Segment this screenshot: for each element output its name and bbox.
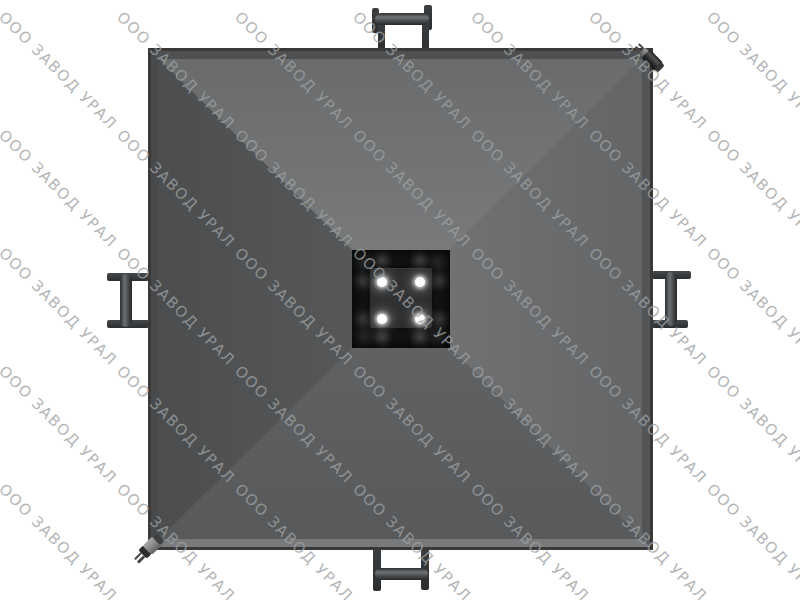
watermark-text: ООО ЗАВОД УРАЛ xyxy=(703,480,800,600)
handle-top-right-leg xyxy=(422,22,429,50)
handle-top-left-leg xyxy=(378,24,385,50)
handle-top-grip xyxy=(375,13,429,25)
handle-right-grip xyxy=(665,272,677,326)
handle-right xyxy=(652,270,691,328)
watermark-text: ООО ЗАВОД УРАЛ xyxy=(703,8,800,133)
watermark-text: ООО ЗАВОД УРАЛ xyxy=(0,126,121,251)
pyramid-faces xyxy=(159,59,642,539)
watermark-text: ООО ЗАВОД УРАЛ xyxy=(0,362,121,487)
handle-left-grip xyxy=(120,274,132,327)
handle-bottom xyxy=(372,546,431,592)
handle-top xyxy=(372,5,432,50)
watermark-text: ООО ЗАВОД УРАЛ xyxy=(703,244,800,369)
center-socket xyxy=(352,250,450,348)
handle-left xyxy=(107,272,149,329)
watermark-text: ООО ЗАВОД УРАЛ xyxy=(0,480,121,600)
page: { "page": { "background": "#ffffff" }, "… xyxy=(0,0,800,600)
product-lid xyxy=(148,48,653,550)
watermark-text: ООО ЗАВОД УРАЛ xyxy=(703,362,800,487)
bolt xyxy=(415,277,425,287)
watermark-text: ООО ЗАВОД УРАЛ xyxy=(703,126,800,251)
bolt xyxy=(415,314,425,324)
bolt xyxy=(377,314,387,324)
bolt xyxy=(377,277,387,287)
handle-bottom-grip xyxy=(375,568,428,580)
watermark-text: ООО ЗАВОД УРАЛ xyxy=(0,8,121,133)
watermark-text: ООО ЗАВОД УРАЛ xyxy=(0,244,121,369)
